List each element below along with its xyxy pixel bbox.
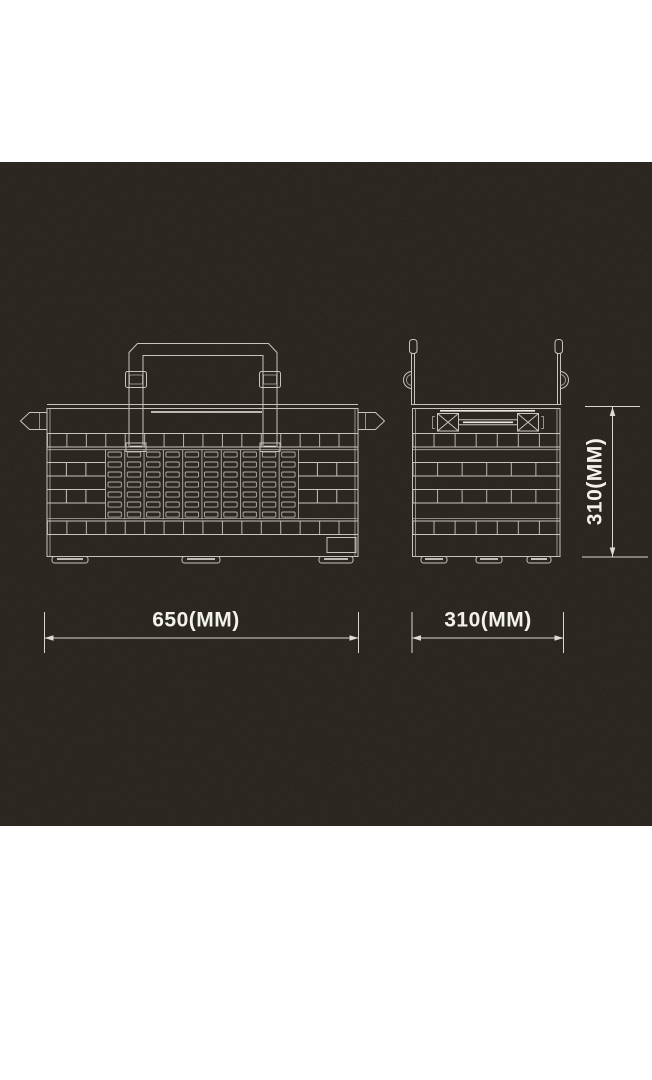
page: 650(MM) 310(MM) 310(MM) — [0, 0, 652, 1080]
front-slot-grid — [105, 450, 299, 520]
side-webbing-row-1 — [413, 434, 561, 447]
side-webbing-row-2 — [413, 463, 561, 476]
front-width-label: 650(MM) — [152, 609, 240, 632]
side-webbing-row-3 — [413, 490, 561, 503]
technical-drawing: 650(MM) 310(MM) 310(MM) — [0, 0, 652, 1080]
side-webbing-row-4 — [413, 521, 561, 534]
front-webbing-row-bottom — [47, 521, 358, 534]
side-width-label: 310(MM) — [444, 609, 532, 632]
front-webbing-row-top — [47, 434, 358, 447]
side-height-label: 310(MM) — [584, 438, 607, 526]
